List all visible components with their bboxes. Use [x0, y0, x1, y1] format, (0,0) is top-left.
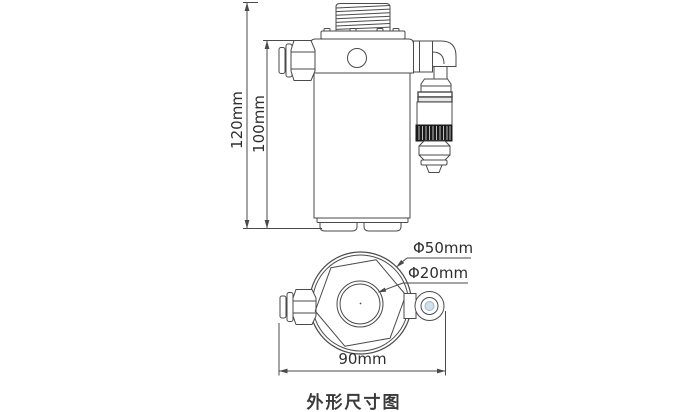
hex-nut [419, 141, 450, 160]
dim-label-total-height: 120mm [228, 89, 246, 151]
dim-port-diameter-leader [378, 283, 469, 293]
canister-body [311, 39, 414, 231]
top-view-left-fitting [280, 290, 316, 325]
threaded-port [336, 4, 390, 32]
front-view [279, 4, 456, 232]
left-inlet-fitting [279, 41, 315, 81]
knurled-ring [416, 125, 452, 141]
dim-label-port-diameter: Φ20mm [408, 264, 468, 282]
top-view-right-fitting [404, 292, 444, 321]
vent-hole [348, 49, 367, 68]
dim-label-outer-diameter: Φ50mm [413, 239, 473, 257]
elbow-breather-assembly [414, 41, 457, 173]
dim-label-body-height: 100mm [250, 93, 268, 155]
center-mark [360, 303, 362, 305]
foot-left [320, 223, 357, 232]
dimension-drawing-page: 120mm 100mm Φ50mm Φ20mm 90mm 外形尺寸图 [0, 0, 700, 412]
foot-right [364, 223, 401, 232]
dim-label-overall-width: 90mm [334, 350, 391, 368]
base-plate [317, 218, 408, 223]
drawing-caption: 外形尺寸图 [244, 388, 464, 412]
